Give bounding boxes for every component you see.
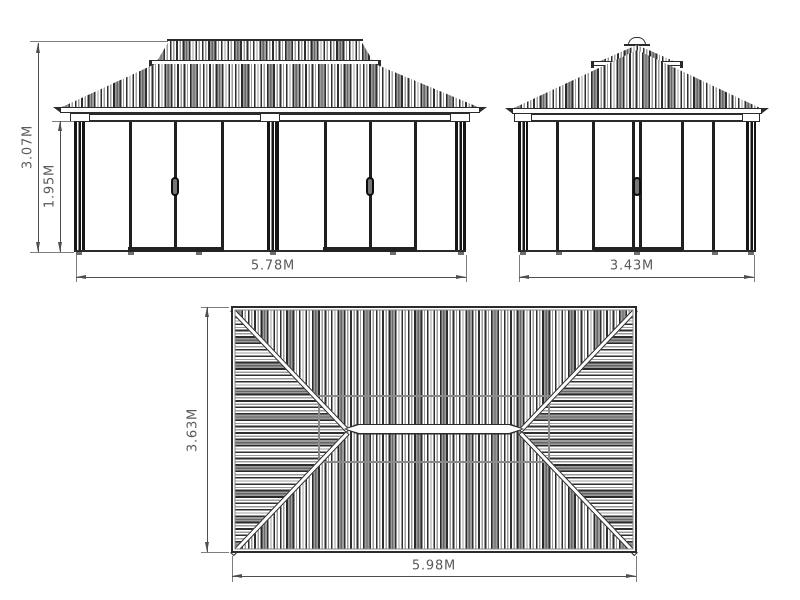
door-track [128, 247, 224, 252]
eave-tip [505, 108, 513, 114]
panel-mullion [129, 122, 132, 251]
panel-mullion [556, 122, 559, 251]
dim-label-front-wall-height: 1.95M [43, 164, 58, 208]
eave-tip [761, 108, 769, 114]
roof-plan-frame [231, 306, 637, 553]
door-handle [633, 177, 641, 196]
gazebo-dimension-drawing: 3.07M 1.95M 5.78M [0, 0, 800, 600]
foot-pad [634, 252, 640, 255]
door-handle [171, 177, 179, 196]
dim-label-side-width: 3.43M [610, 259, 654, 274]
dim-arrow [36, 242, 40, 252]
roof-plan-view: 3.63M 5.98M [0, 290, 800, 600]
dim-arrow [205, 307, 209, 317]
front-elevation-view: 3.07M 1.95M 5.78M [0, 0, 500, 300]
fascia-end-cap [591, 61, 594, 68]
foot-pad [712, 252, 718, 255]
foot-pad [520, 252, 526, 255]
dim-arrow [58, 242, 62, 252]
front-main-roof [62, 64, 478, 107]
extension-line [232, 556, 233, 582]
dim-line-front-wall-height [60, 121, 61, 252]
extension-line [30, 41, 168, 42]
panel-mullion [324, 122, 327, 251]
eave-tip [53, 107, 61, 113]
dim-label-plan-depth: 3.63M [186, 408, 201, 452]
front-corner-post-right [455, 122, 466, 252]
panel-mullion [221, 122, 224, 251]
dim-arrow [232, 574, 242, 578]
dim-line-front-total-height [38, 43, 39, 252]
post-capital [260, 113, 280, 122]
dim-label-front-total-height: 3.07M [21, 125, 36, 169]
post-capital [742, 113, 760, 122]
dim-arrow [744, 275, 754, 279]
dim-line-plan-width [232, 576, 636, 577]
panel-mullion [592, 122, 595, 251]
side-main-roof [514, 50, 760, 108]
side-corner-post-right [746, 122, 756, 252]
foot-pad [458, 252, 464, 255]
eave-tip [479, 107, 487, 113]
dim-arrow [36, 43, 40, 53]
extension-line [30, 252, 74, 253]
foot-pad [270, 252, 276, 255]
panel-mullion [712, 122, 715, 251]
foot-pad [76, 252, 82, 255]
dim-label-front-width: 5.78M [251, 259, 295, 274]
dim-arrow [626, 574, 636, 578]
front-monitor-roof [157, 41, 373, 61]
extension-line [52, 121, 74, 122]
foot-pad [196, 252, 202, 255]
post-capital [514, 113, 532, 122]
side-header-beam [518, 113, 756, 122]
foot-pad [128, 252, 134, 255]
foot-pad [556, 252, 562, 255]
dim-line-plan-depth [207, 307, 208, 552]
front-center-post [267, 122, 279, 252]
dim-line-side-width [519, 277, 754, 278]
side-elevation-view: 3.43M [500, 0, 800, 300]
door-track [323, 247, 417, 252]
dim-arrow [519, 275, 529, 279]
dim-arrow [456, 275, 466, 279]
front-corner-post-left [74, 122, 85, 252]
panel-mullion [681, 122, 684, 251]
post-capital [450, 113, 470, 122]
dim-arrow [58, 121, 62, 131]
foot-pad [390, 252, 396, 255]
fascia-end-cap [680, 61, 683, 68]
dim-arrow [76, 275, 86, 279]
front-monitor-ridge-line [167, 39, 363, 41]
dim-label-plan-width: 5.98M [412, 559, 456, 574]
panel-mullion [414, 122, 417, 251]
dim-line-front-width [76, 277, 466, 278]
extension-line [636, 556, 637, 582]
side-corner-post-left [518, 122, 528, 252]
dim-arrow [205, 542, 209, 552]
door-handle [366, 177, 374, 196]
